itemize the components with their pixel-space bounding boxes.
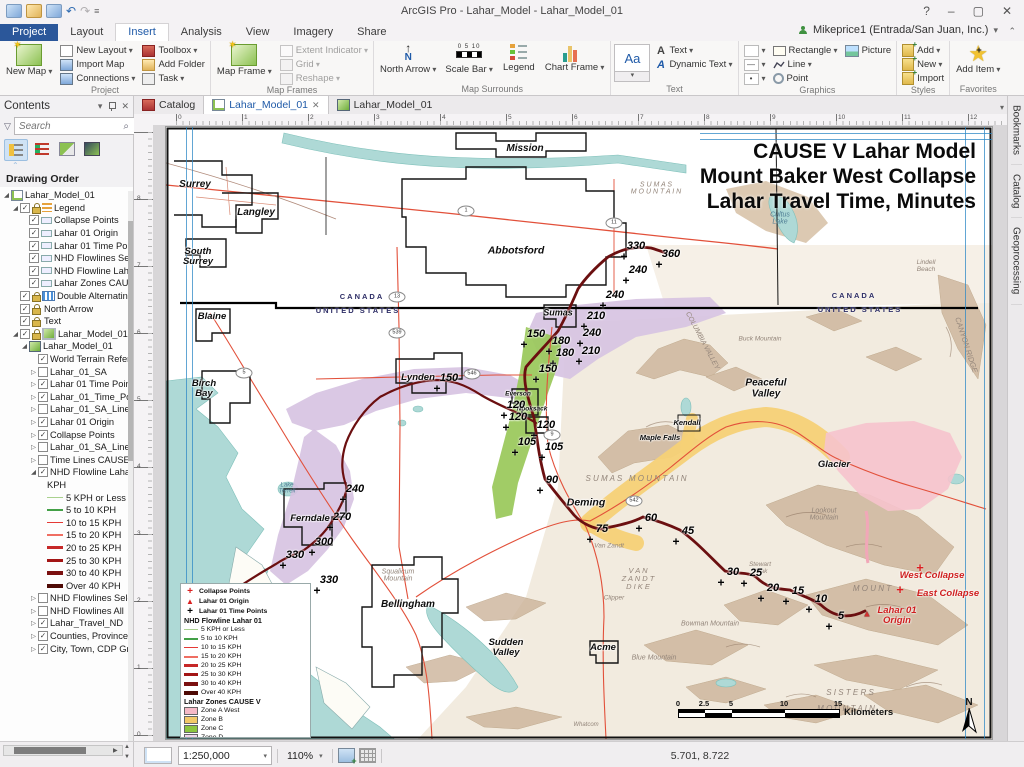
legend-point-row: +Lahar 01 Time Points — [184, 606, 307, 616]
ruler-number: 6 — [574, 114, 578, 121]
expander-icon[interactable]: ▷ — [29, 607, 38, 615]
legend-label: NHD Flowline Lahar 01 — [184, 616, 262, 625]
dock-tab-bookmarks[interactable]: Bookmarks — [1011, 96, 1022, 165]
ruler-number: 2 — [310, 114, 314, 121]
line-button[interactable]: Line — [771, 58, 840, 71]
fill-swatch-icon — [744, 45, 759, 57]
lock-icon — [32, 203, 40, 212]
ruler-number: 6 — [137, 329, 141, 336]
layer-label: Lahar_01_SA — [50, 367, 107, 377]
north-arrow: N — [959, 697, 979, 737]
task-button[interactable]: Task — [140, 72, 206, 85]
patch-icon — [41, 280, 52, 287]
patch-icon — [41, 242, 52, 249]
layer-item[interactable]: ◢✓Legend — [0, 202, 133, 215]
layer-checkbox[interactable]: ✓ — [20, 203, 30, 213]
line-swatch — [184, 647, 198, 648]
dock-tab-catalog[interactable]: Catalog — [1011, 165, 1022, 218]
expander-icon[interactable]: ▷ — [29, 405, 38, 413]
legend-kph-row: 20 to 25 KPH — [184, 661, 307, 670]
legend-label: 10 to 15 KPH — [201, 644, 241, 651]
layer-checkbox[interactable]: ✓ — [38, 379, 48, 389]
layer-item[interactable]: 20 to 25 KPH — [0, 542, 133, 555]
picture-button[interactable]: Picture — [843, 44, 894, 57]
grid-icon — [280, 59, 293, 71]
layer-checkbox[interactable]: ✓ — [29, 215, 39, 225]
layout-thumbnail-icon[interactable] — [144, 747, 172, 764]
layer-label: World Terrain Refere — [50, 354, 133, 364]
tab-imagery[interactable]: Imagery — [281, 24, 345, 41]
expander-icon[interactable]: ◢ — [11, 204, 20, 212]
new-layout-icon — [60, 45, 73, 57]
panel-menu-icon[interactable]: ▾ — [98, 101, 103, 112]
layer-checkbox[interactable] — [38, 367, 48, 377]
legend-icon — [510, 44, 528, 62]
new-map-icon: ✶ — [16, 44, 42, 66]
styles-import-button[interactable]: Import — [900, 72, 946, 85]
styles-new-button[interactable]: New — [900, 58, 946, 71]
layer-label: Counties, Province — [50, 631, 128, 641]
layer-item[interactable]: ▷Time Lines CAUSE V — [0, 453, 133, 466]
patch-icon — [41, 267, 52, 274]
grid-button[interactable]: Grid — [278, 58, 370, 71]
scale-bar-tick: 2.5 — [699, 699, 709, 708]
layer-checkbox[interactable] — [38, 593, 48, 603]
layer-checkbox[interactable]: ✓ — [20, 291, 30, 301]
layer-checkbox[interactable]: ✓ — [38, 644, 48, 654]
legend-zone-row: Zone C — [184, 724, 307, 733]
layer-checkbox[interactable]: ✓ — [29, 278, 39, 288]
line-swatch — [47, 584, 63, 588]
rectangle-button[interactable]: Rectangle — [771, 44, 840, 57]
ruler-number: 11 — [904, 114, 911, 121]
line-swatch — [47, 571, 63, 575]
point-swatch-button[interactable]: • — [742, 72, 768, 85]
layer-item[interactable]: ◢Lahar_Model_01 — [0, 340, 133, 353]
panel-close-icon[interactable]: ✕ — [121, 101, 129, 112]
point-swatch-icon: • — [744, 73, 759, 85]
patch-icon — [41, 230, 52, 237]
expander-icon[interactable]: ◢ — [20, 342, 29, 350]
legend-label: Collapse Points — [199, 588, 250, 595]
patch-icon — [41, 217, 52, 224]
layer-checkbox[interactable]: ✓ — [38, 392, 48, 402]
layer-item[interactable]: ✓Text — [0, 315, 133, 328]
layer-item[interactable]: ✓Lahar 01 Origin — [0, 227, 133, 240]
layer-item[interactable]: ✓NHD Flowline Laha — [0, 265, 133, 278]
ribbon-group-map-surrounds: ↑N North Arrow 0 5 10 Scale Bar Legend C… — [374, 41, 611, 95]
layer-checkbox[interactable]: ✓ — [29, 241, 39, 251]
close-button[interactable]: ✕ — [1002, 4, 1012, 18]
ruler-number: 5 — [508, 114, 512, 121]
layer-item[interactable]: ✓World Terrain Refere — [0, 353, 133, 366]
list-by-selection-button[interactable] — [56, 139, 78, 159]
list-by-source-button[interactable] — [31, 139, 53, 159]
window-title: ArcGIS Pro - Lahar_Model - Lahar_Model_0… — [0, 5, 1024, 17]
layout-canvas[interactable]: CANADAUNITED STATESCANADAUNITED STATESMi… — [153, 125, 1008, 741]
ruler-number: 8 — [706, 114, 710, 121]
stroke-swatch-button[interactable]: — — [742, 58, 768, 71]
legend-header: NHD Flowline Lahar 01 — [184, 616, 307, 625]
legend-label: 25 to 30 KPH — [201, 671, 241, 678]
layer-item[interactable]: Over 40 KPH — [0, 579, 133, 592]
layer-item[interactable]: 5 KPH or Less — [0, 491, 133, 504]
layer-item[interactable]: KPH — [0, 479, 133, 492]
contents-panel-title: Contents — [4, 100, 50, 112]
layer-label: Over 40 KPH — [66, 581, 121, 591]
layer-label: City, Town, CDP Gro — [50, 644, 133, 654]
tab-layout[interactable]: Layout — [58, 24, 115, 41]
layer-label: Time Lines CAUSE V — [50, 455, 133, 465]
scale-bar-unit: Kilometers — [844, 707, 893, 718]
layer-label: Text — [44, 316, 61, 326]
layer-item[interactable]: 15 to 20 KPH — [0, 529, 133, 542]
import-map-icon — [60, 59, 73, 71]
doc-tab-layout-active[interactable]: Lahar_Model_01 ✕ — [203, 95, 328, 114]
layer-item[interactable]: ▷✓Lahar 01 Time Point — [0, 378, 133, 391]
legend-label: 15 to 20 KPH — [201, 653, 241, 660]
legend-icon — [42, 203, 52, 212]
scale-bar: Kilometers 02.551015 — [666, 699, 886, 725]
map-scale-combo[interactable]: 1:250,000▾ — [178, 746, 272, 765]
layer-checkbox[interactable]: ✓ — [29, 253, 39, 263]
layer-label: 20 to 25 KPH — [66, 543, 121, 553]
ribbon-group-text: Aa ▾ AText ADynamic Text Text — [611, 41, 738, 95]
ribbon-group-project: ✶ New Map New Layout Import Map Connecti… — [0, 41, 211, 95]
layer-item[interactable]: 10 to 15 KPH — [0, 516, 133, 529]
layer-item[interactable]: ✓Lahar Zones CAUSE — [0, 277, 133, 290]
expander-icon[interactable]: ▷ — [29, 431, 38, 439]
point-icon — [773, 73, 784, 84]
layer-label: Lahar_Model_01 — [25, 190, 95, 200]
close-tab-icon[interactable]: ✕ — [312, 100, 320, 111]
legend-label: 30 to 40 KPH — [201, 680, 241, 687]
layer-item[interactable]: ▷✓Lahar 01 Origin — [0, 416, 133, 429]
layer-label: NHD Flowlines Selec — [50, 593, 133, 603]
doc-tab-map[interactable]: Lahar_Model_01 — [329, 96, 441, 114]
line-swatch — [184, 682, 198, 686]
grid-icon — [42, 291, 55, 301]
expander-icon[interactable]: ▷ — [29, 632, 38, 640]
legend-zone-row: Zone D — [184, 733, 307, 738]
zone-swatch — [184, 734, 198, 739]
style-import-icon — [902, 72, 914, 85]
user-icon — [799, 26, 808, 35]
layer-checkbox[interactable]: ✓ — [38, 354, 48, 364]
layer-checkbox[interactable]: ✓ — [29, 228, 39, 238]
expander-icon[interactable]: ▷ — [29, 443, 38, 451]
zone-swatch — [184, 725, 198, 733]
layer-checkbox[interactable]: ✓ — [38, 417, 48, 427]
layer-label: Lahar 01 Time Poir — [54, 241, 133, 251]
tri-red-icon: ▲ — [184, 597, 196, 606]
layer-item[interactable]: ▷NHD Flowlines All — [0, 605, 133, 618]
toolbox-button[interactable]: Toolbox — [140, 44, 206, 57]
line-swatch — [184, 656, 198, 658]
layer-item[interactable]: 5 to 10 KPH — [0, 504, 133, 517]
expander-icon[interactable]: ▷ — [29, 619, 38, 627]
expander-icon[interactable]: ◢ — [2, 191, 11, 199]
tab-insert[interactable]: Insert — [115, 23, 169, 41]
ruler-number: 4 — [442, 114, 446, 121]
scale-bar-tick: 5 — [729, 699, 733, 708]
layer-label: 5 KPH or Less — [66, 493, 126, 503]
patch-icon — [41, 255, 52, 262]
expander-icon[interactable]: ▷ — [29, 393, 38, 401]
layer-checkbox[interactable]: ✓ — [20, 329, 30, 339]
line-swatch — [47, 534, 63, 536]
legend-point-row: +Collapse Points — [184, 586, 307, 596]
ruler-number: 1 — [244, 114, 248, 121]
layer-checkbox[interactable] — [38, 404, 48, 414]
ruler-number: 10 — [838, 114, 845, 121]
layout-icon — [212, 99, 225, 111]
chevron-down-icon: ▾ — [993, 25, 998, 36]
expander-icon[interactable]: ▷ — [29, 456, 38, 464]
layer-checkbox[interactable]: ✓ — [20, 304, 30, 314]
layout-view[interactable]: 0123456789101112 876543210 — [134, 114, 1008, 741]
layer-label: NHD Flowlines All — [50, 606, 124, 616]
ruler-number: 2 — [137, 597, 141, 604]
layer-checkbox[interactable]: ✓ — [38, 618, 48, 628]
legend-kph-row: 15 to 20 KPH — [184, 652, 307, 661]
legend-kph-row: Over 40 KPH — [184, 688, 307, 697]
layer-label: North Arrow — [44, 304, 93, 314]
layer-label: NHD Flowline Laha — [54, 266, 133, 276]
group-label-styles: Styles — [900, 85, 946, 96]
layer-label: Lahar_Travel_ND — [50, 618, 123, 628]
text-style-gallery-drop[interactable]: ▾ — [614, 72, 650, 82]
layer-item[interactable]: ◢✓Lahar_Model_01 I — [0, 328, 133, 341]
extent-indicator-icon — [280, 45, 293, 57]
map-frame-icon: ✶ — [231, 44, 257, 66]
dynamic-text-button[interactable]: ADynamic Text — [653, 58, 734, 71]
group-label-project: Project — [3, 85, 207, 96]
title-bar: ↶ ↷ ≡ ArcGIS Pro - Lahar_Model - Lahar_M… — [0, 0, 1024, 22]
layer-label: Lahar_01_SA_Lines — [50, 442, 133, 452]
list-by-drawing-order-button[interactable] — [4, 139, 28, 161]
group-label-text: Text — [614, 84, 734, 95]
toolbox-icon — [142, 45, 155, 57]
layer-checkbox[interactable]: ✓ — [38, 631, 48, 641]
line-swatch — [47, 559, 63, 562]
grid-view-icon[interactable] — [359, 748, 376, 763]
legend-label: Over 40 KPH — [201, 689, 241, 696]
layer-item[interactable]: 25 to 30 KPH — [0, 554, 133, 567]
user-account[interactable]: Mikeprice1 (Entrada/San Juan, Inc.) ▾ — [799, 24, 998, 36]
add-item-button[interactable]: ★ Add Item — [953, 42, 1003, 84]
scale-bar-tick: 0 — [676, 699, 680, 708]
tab-analysis[interactable]: Analysis — [169, 24, 234, 41]
line-swatch — [184, 691, 198, 695]
legend-label: Lahar 01 Time Points — [199, 608, 267, 615]
ribbon-tab-row: Project Layout Insert Analysis View Imag… — [0, 22, 1024, 41]
layer-checkbox[interactable]: ✓ — [38, 467, 48, 477]
chart-frame-button[interactable]: Chart Frame — [542, 42, 608, 84]
layer-item[interactable]: ▷Lahar_01_SA_Lines_X — [0, 403, 133, 416]
add-item-star-icon: ★ — [968, 44, 988, 64]
layer-item[interactable]: ▷✓Lahar_01_Time_Point — [0, 391, 133, 404]
layer-label: 15 to 20 KPH — [66, 530, 121, 540]
legend-label: Zone D — [201, 734, 223, 738]
expander-icon[interactable]: ◢ — [11, 330, 20, 338]
extent-indicator-button[interactable]: Extent Indicator — [278, 44, 370, 57]
ribbon-group-graphics: — • Rectangle Line Point Picture Graphic… — [739, 41, 898, 95]
reshape-icon — [280, 73, 293, 85]
connections-button[interactable]: Connections — [58, 72, 137, 85]
tab-share[interactable]: Share — [345, 24, 398, 41]
expander-icon[interactable]: ▷ — [29, 645, 38, 653]
line-swatch — [184, 664, 198, 667]
right-dock-tabs: Bookmarks Catalog Geoprocessing — [1007, 96, 1024, 741]
add-folder-icon — [142, 59, 155, 71]
expander-icon[interactable]: ▷ — [29, 594, 38, 602]
ruler-number: 1 — [137, 664, 141, 671]
ruler-number: 3 — [376, 114, 380, 121]
layer-checkbox[interactable] — [38, 606, 48, 616]
layer-checkbox[interactable]: ✓ — [20, 316, 30, 326]
add-folder-button[interactable]: Add Folder — [140, 58, 206, 71]
filter-icon[interactable]: ▽ — [4, 121, 11, 132]
tab-project[interactable]: Project — [0, 24, 58, 41]
contents-panel-scrollbar[interactable]: ◀ ▶ ▲ ▼ — [0, 742, 134, 767]
ruler-number: 5 — [137, 396, 141, 403]
dynamic-text-icon: A — [655, 59, 666, 71]
layer-item[interactable]: ✓NHD Flowlines Sele — [0, 252, 133, 265]
line-swatch — [47, 546, 63, 549]
legend-kph-row: 25 to 30 KPH — [184, 670, 307, 679]
layer-item[interactable]: ▷Lahar_01_SA_Lines — [0, 441, 133, 454]
search-input[interactable] — [14, 117, 136, 135]
layer-label: Collapse Points — [50, 430, 115, 440]
line-swatch — [47, 497, 63, 498]
new-map-button[interactable]: ✶ New Map — [3, 42, 55, 85]
north-arrow-icon: ↑N — [396, 44, 420, 64]
legend-header: Lahar Zones CAUSE V — [184, 697, 307, 706]
group-label-favorites: Favorites — [953, 84, 1003, 95]
scale-bar-button[interactable]: 0 5 10 Scale Bar — [442, 42, 495, 84]
catalog-icon — [142, 99, 155, 111]
layer-item[interactable]: ✓Lahar 01 Time Poir — [0, 239, 133, 252]
text-icon: A — [655, 45, 666, 57]
contents-panel: Contents ▾ ✕ ▽ ⌕ ⌃ Drawing Order ◢Lahar_… — [0, 96, 134, 741]
layer-checkbox[interactable]: ✓ — [38, 430, 48, 440]
text-style-gallery[interactable]: Aa — [614, 44, 650, 72]
legend-point-row: ▲Lahar 01 Origin — [184, 596, 307, 606]
new-layout-button[interactable]: New Layout — [58, 44, 137, 57]
group-label-graphics: Graphics — [742, 85, 894, 96]
expander-icon[interactable]: ▷ — [29, 418, 38, 426]
layer-item[interactable]: ▷✓City, Town, CDP Gro — [0, 642, 133, 655]
layout-page[interactable]: CANADAUNITED STATESCANADAUNITED STATESMi… — [166, 127, 992, 739]
map-icon — [29, 341, 41, 352]
line-swatch — [184, 638, 198, 640]
legend-label: Zone B — [201, 716, 223, 723]
search-icon: ⌕ — [123, 121, 129, 132]
legend-button[interactable]: Legend — [499, 42, 539, 84]
list-by-editing-button[interactable] — [81, 139, 103, 159]
ruler-number: 7 — [137, 262, 141, 269]
layer-item[interactable]: ✓North Arrow — [0, 302, 133, 315]
map-legend: +Collapse Points▲Lahar 01 Origin+Lahar 0… — [180, 583, 311, 738]
layer-item[interactable]: ▷Lahar_01_SA — [0, 365, 133, 378]
lock-icon — [32, 304, 40, 313]
styles-add-button[interactable]: Add — [900, 44, 946, 57]
layer-checkbox[interactable] — [38, 442, 48, 452]
line-swatch — [184, 673, 198, 676]
zoom-combo[interactable]: 110%▾ — [283, 747, 327, 764]
tree-scrollbar[interactable] — [128, 191, 133, 741]
layer-item[interactable]: ▷✓Counties, Province — [0, 630, 133, 643]
legend-label: Lahar Zones CAUSE V — [184, 697, 261, 706]
dock-tab-geoprocessing[interactable]: Geoprocessing — [1011, 218, 1022, 304]
frame-icon — [42, 328, 56, 341]
lock-icon — [32, 317, 40, 326]
group-label-map-surrounds: Map Surrounds — [377, 84, 607, 95]
help-button[interactable]: ? — [923, 4, 930, 18]
legend-label: Zone A West — [201, 707, 239, 714]
fill-swatch-button[interactable] — [742, 44, 768, 57]
layout-icon — [11, 190, 23, 201]
expander-icon[interactable]: ▷ — [29, 380, 38, 388]
zone-swatch — [184, 716, 198, 724]
lock-icon — [32, 292, 40, 301]
layer-item[interactable]: ◢✓NHD Flowline Lahar — [0, 466, 133, 479]
layer-item[interactable]: ▷NHD Flowlines Selec — [0, 592, 133, 605]
layer-item[interactable]: ▷✓Lahar_Travel_ND — [0, 617, 133, 630]
collapse-ribbon-icon[interactable]: ⌃ — [1008, 26, 1016, 37]
pin-icon[interactable] — [108, 102, 115, 111]
legend-zone-row: Zone B — [184, 715, 307, 724]
expander-icon[interactable]: ▷ — [29, 368, 38, 376]
layer-label: 25 to 30 KPH — [66, 556, 121, 566]
cross-black-icon: + — [184, 606, 196, 617]
ruler-number: 3 — [137, 530, 141, 537]
layer-label: NHD Flowlines Sele — [54, 253, 133, 263]
layer-checkbox[interactable]: ✓ — [29, 266, 39, 276]
legend-label: Lahar 01 Origin — [199, 598, 249, 605]
layer-item[interactable]: ✓Double Alternating — [0, 290, 133, 303]
add-layout-icon[interactable] — [338, 748, 355, 763]
layer-item[interactable]: ◢Lahar_Model_01 — [0, 189, 133, 202]
ruler-number: 0 — [178, 114, 182, 121]
text-button[interactable]: AText — [653, 44, 734, 57]
layer-item[interactable]: ▷✓Collapse Points — [0, 428, 133, 441]
doc-tab-catalog[interactable]: Catalog — [134, 96, 203, 114]
layer-label: Lahar_01_Time_Point — [50, 392, 133, 402]
ruler-number: 4 — [137, 463, 141, 470]
layer-item[interactable]: ✓Collapse Points — [0, 214, 133, 227]
layer-label: Lahar_Model_01 — [43, 341, 113, 351]
tab-view[interactable]: View — [234, 24, 282, 41]
layer-label: Collapse Points — [54, 215, 119, 225]
point-button[interactable]: Point — [771, 72, 840, 85]
layer-label: Lahar Zones CAUSE — [54, 278, 133, 288]
maximize-button[interactable]: ▢ — [973, 4, 984, 18]
layer-label: Lahar_01_SA_Lines_X — [50, 404, 133, 414]
expander-icon[interactable]: ◢ — [29, 468, 38, 476]
connections-icon — [60, 73, 73, 85]
scale-bar-tick: 10 — [780, 699, 788, 708]
layer-item[interactable]: 30 to 40 KPH — [0, 567, 133, 580]
task-icon — [142, 73, 155, 85]
import-map-button[interactable]: Import Map — [58, 58, 137, 71]
layer-checkbox[interactable] — [38, 455, 48, 465]
reshape-button[interactable]: Reshape — [278, 72, 370, 85]
minimize-button[interactable]: – — [948, 4, 955, 18]
north-arrow-button[interactable]: ↑N North Arrow — [377, 42, 439, 84]
map-frame-button[interactable]: ✶ Map Frame — [214, 42, 275, 85]
